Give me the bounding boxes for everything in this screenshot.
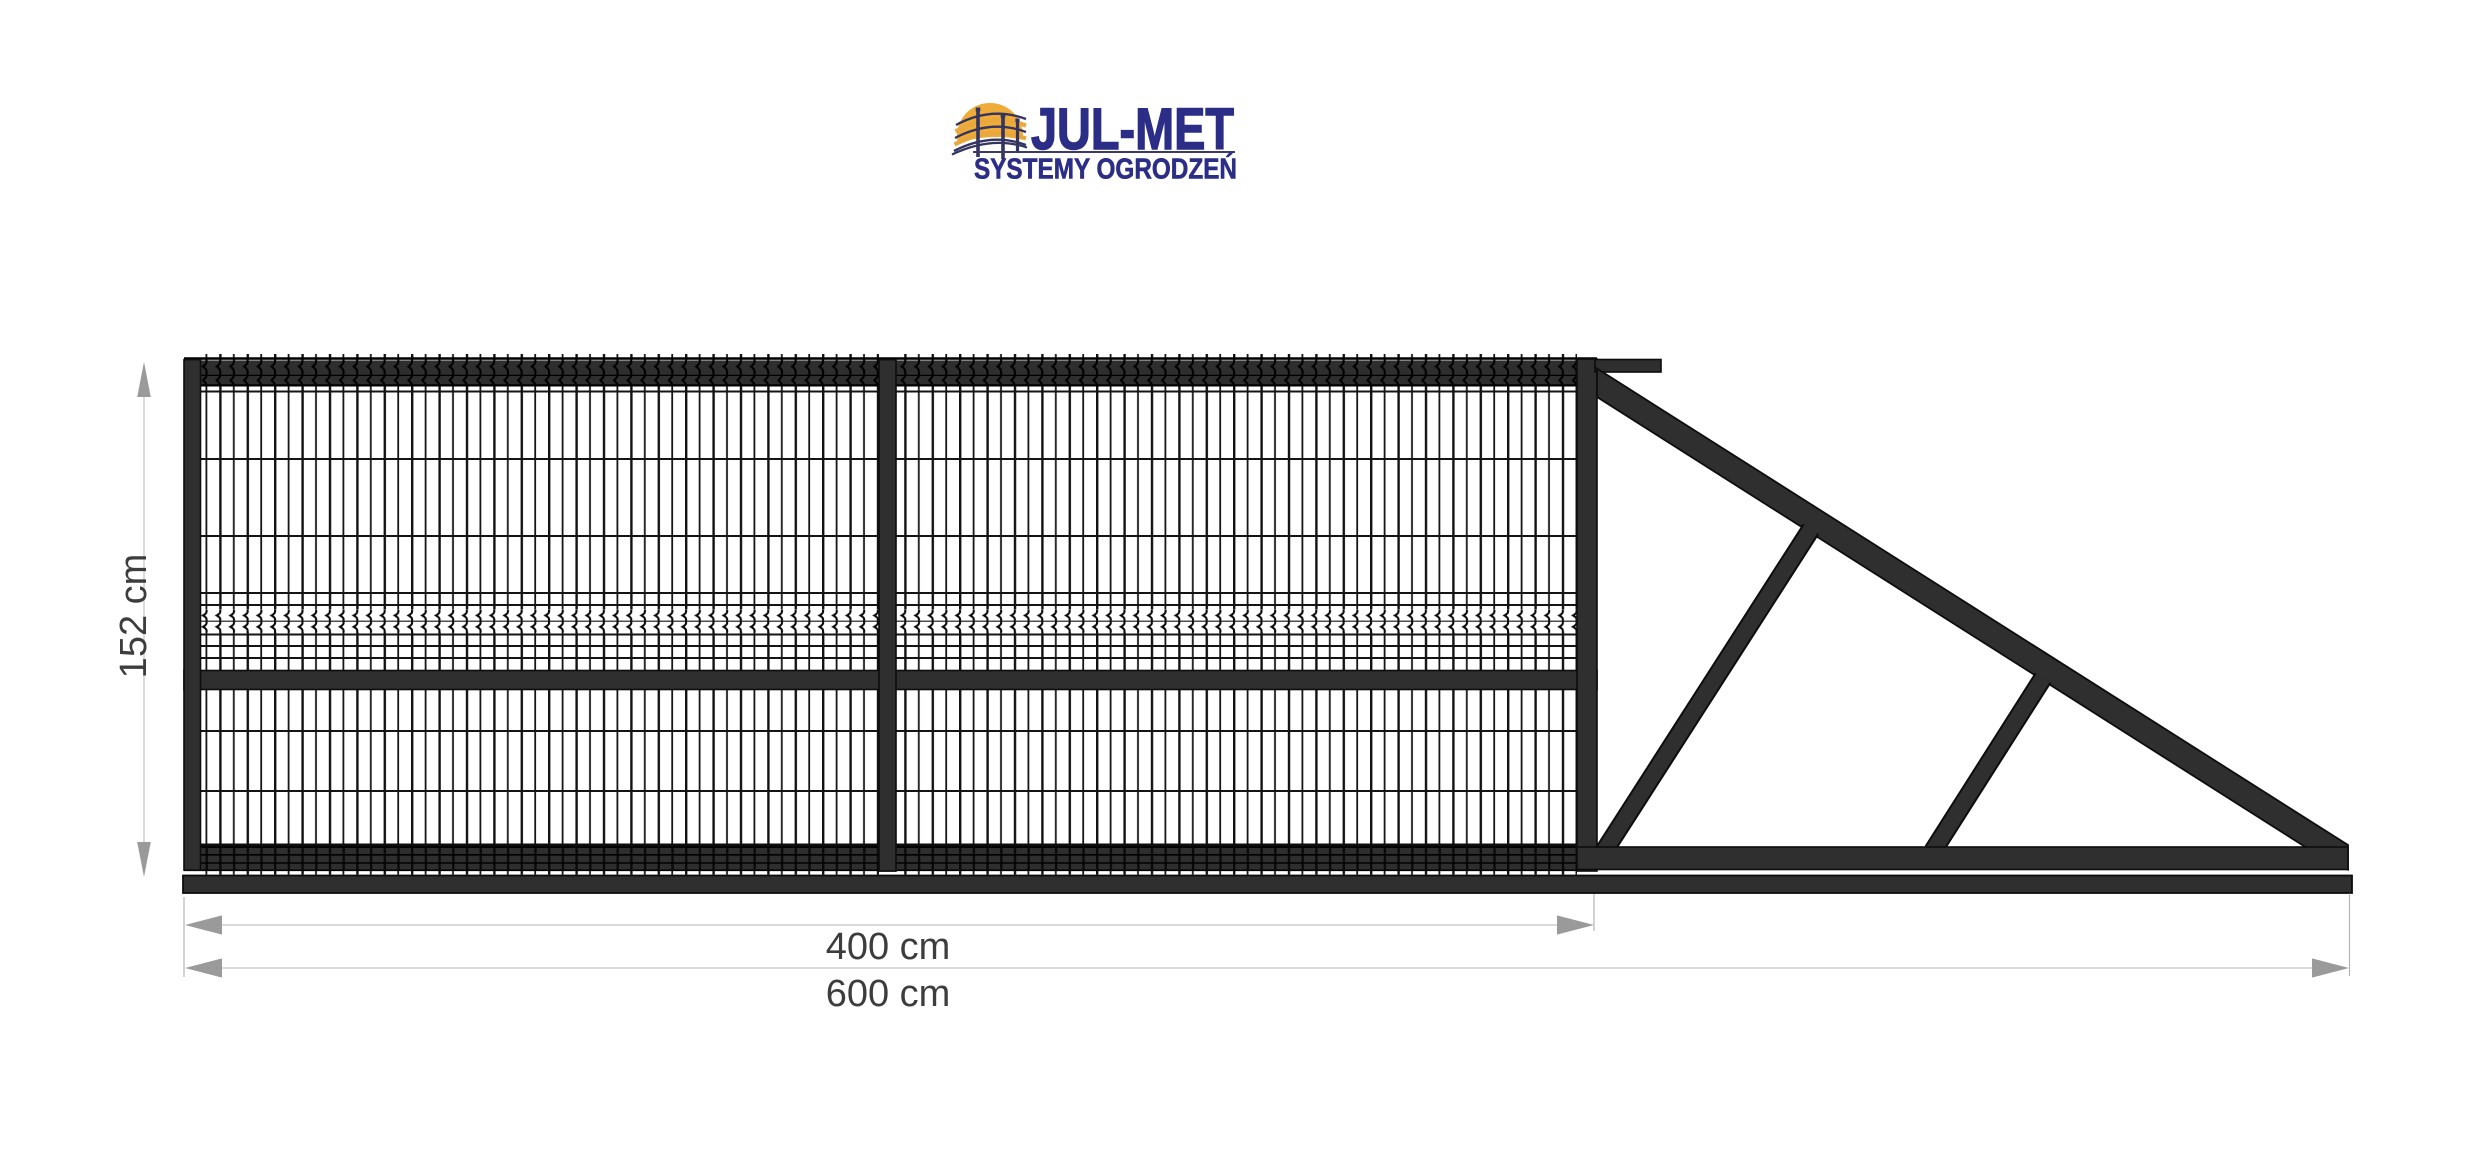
svg-text:152 cm: 152 cm bbox=[113, 554, 155, 679]
svg-text:600 cm: 600 cm bbox=[826, 973, 951, 1015]
svg-text:SYSTEMY OGRODZEŃ: SYSTEMY OGRODZEŃ bbox=[974, 152, 1237, 186]
svg-text:400 cm: 400 cm bbox=[826, 926, 951, 968]
